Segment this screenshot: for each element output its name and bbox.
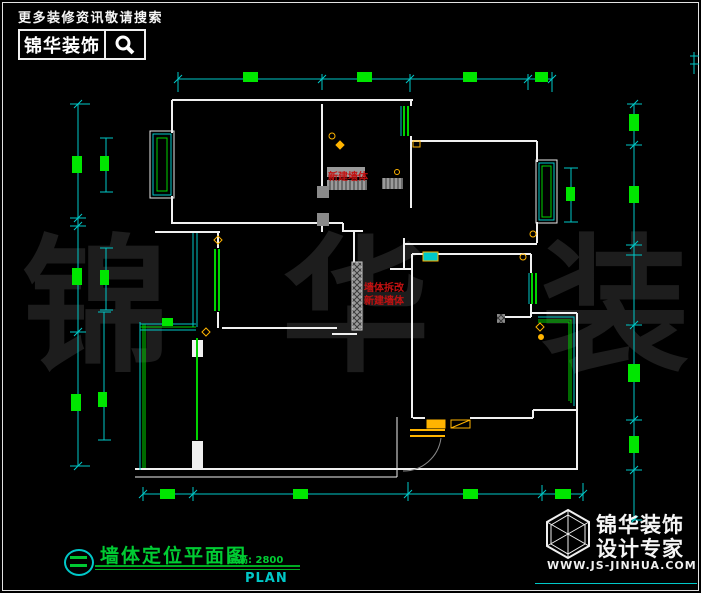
door-jamb-block2 xyxy=(317,213,329,226)
title-underline xyxy=(95,565,300,567)
fixture-diamond xyxy=(336,141,344,149)
dim-bottom-ext xyxy=(143,482,583,501)
door-panel-filled xyxy=(427,420,445,428)
door-jamb-block xyxy=(317,186,329,198)
bay-corner-green xyxy=(538,320,571,403)
door-swing-arc xyxy=(403,438,441,471)
dim-label-block xyxy=(628,364,640,382)
wall-setback-right xyxy=(411,100,537,141)
wall-bottomright-room-right xyxy=(497,254,531,317)
dim-label-block xyxy=(566,187,575,201)
wall-post-lower xyxy=(192,441,203,468)
dim-label-block xyxy=(71,394,81,411)
cad-floorplan-sheet: 锦 华 装 饰 更多装修资讯敬请搜索 锦华装饰 xyxy=(0,0,701,593)
door-panel-diagonal xyxy=(451,420,470,428)
dim-label-block xyxy=(463,72,477,82)
new-wall-band2-overlay xyxy=(382,178,403,189)
footer-divider-line xyxy=(535,583,697,584)
title-underline-2 xyxy=(95,569,300,570)
floorplan-drawing: 新建墙体 墙体拆改 新建墙体 xyxy=(0,0,701,593)
dim-label-block xyxy=(100,270,109,285)
dim-label-block xyxy=(535,72,548,82)
wall-middle-room xyxy=(155,232,220,328)
plan-label: PLAN xyxy=(245,571,288,586)
corner-fragment xyxy=(690,52,699,74)
fixture-diamond4 xyxy=(536,323,544,331)
bay-window-left-inner xyxy=(157,138,167,191)
door-leaf-bar xyxy=(410,430,445,436)
dim-label-block xyxy=(629,436,639,453)
wall-topleft-room-bottom xyxy=(172,223,363,232)
bay-window-right-inner xyxy=(542,166,551,217)
wall-topright-room-bottom xyxy=(403,141,537,244)
glass-door-right xyxy=(532,273,536,304)
dim-label-block xyxy=(629,114,639,131)
dim-label-block xyxy=(98,392,107,407)
dim-label-block xyxy=(72,268,82,285)
fixture-mark3 xyxy=(539,335,544,340)
bay-window-right-mid xyxy=(539,163,554,220)
dim-label-block xyxy=(357,72,372,82)
fixture-mark xyxy=(329,133,335,139)
ac-unit-box xyxy=(423,252,438,261)
dim-label-block xyxy=(72,156,82,173)
fixture-mark5 xyxy=(395,170,400,175)
dim-label-block xyxy=(293,489,308,499)
dim-label-block xyxy=(555,489,571,499)
floor-height-label: 层高: 2800 xyxy=(228,551,283,566)
jamb-hatch-small-overlay xyxy=(497,314,505,323)
window-setback xyxy=(404,106,408,136)
dim-label-block xyxy=(629,186,639,203)
bay-window-left-outer xyxy=(150,131,174,198)
fixture-diamond3 xyxy=(202,328,210,336)
wall-middle-room-bottom xyxy=(222,328,357,334)
annotation-wall-change-1: 墙体拆改 xyxy=(364,281,405,294)
cyan-track-middle xyxy=(193,233,197,327)
dim-label-block xyxy=(160,489,175,499)
footer-website: WWW.JS-JINHUA.COM xyxy=(547,559,697,572)
annotation-new-wall-top: 新建墙体 xyxy=(328,170,369,183)
new-wall-column-hatch xyxy=(352,262,362,330)
wall-hall-jamb xyxy=(390,238,412,269)
dim-label-block xyxy=(100,156,109,171)
dim-label-block xyxy=(162,318,173,326)
red-annotations: 新建墙体 墙体拆改 新建墙体 xyxy=(328,170,405,307)
glass-door-middle xyxy=(215,249,219,311)
fixture-mark2 xyxy=(530,231,536,237)
window-wall-left-green xyxy=(143,324,145,468)
drawing-title: 墙体定位平面图 xyxy=(100,541,247,568)
annotation-wall-change-2: 新建墙体 xyxy=(364,294,405,307)
dim-label-block xyxy=(463,489,478,499)
dim-label-block xyxy=(243,72,258,82)
bay-window-left-mid xyxy=(153,134,171,195)
cube-logo-icon xyxy=(543,508,593,562)
